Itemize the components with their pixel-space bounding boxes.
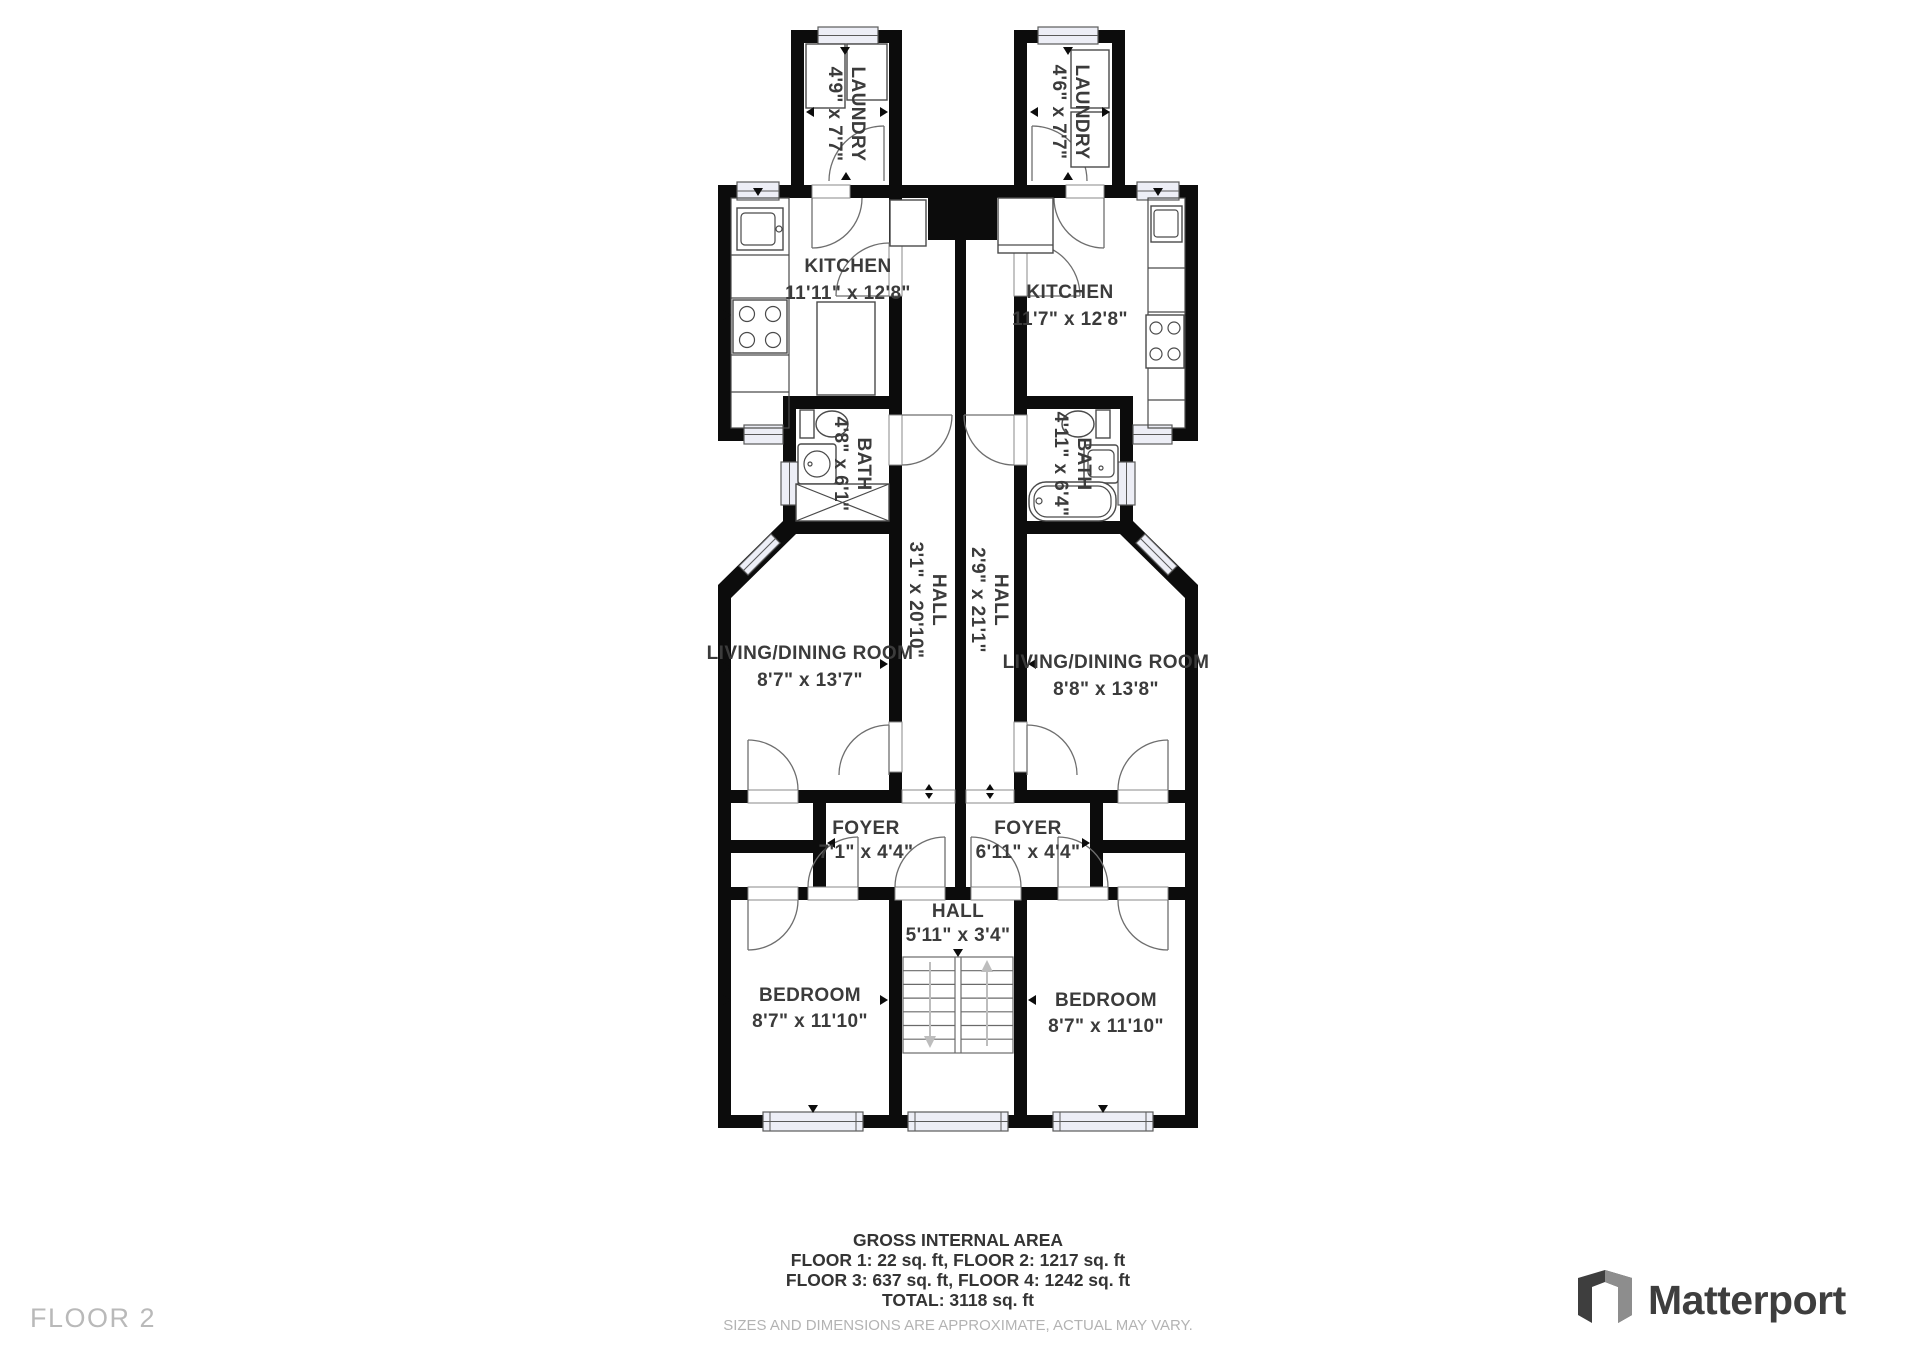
total-area: TOTAL: 3118 sq. ft [882,1290,1034,1310]
washer-dryer-left [806,44,887,108]
room-dims-living-left: 8'7" x 13'7" [757,670,863,691]
window-laundry-left [818,27,878,44]
room-name-bedroom-right: BEDROOM [1055,990,1157,1011]
room-dims-hall-left: 3'1" x 20'10" [905,542,926,659]
window-bedroom-left [763,1112,863,1131]
kitchen-left-cabinet [890,200,926,246]
floor-plan: LAUNDRY 4'9" x 7'7" LAUNDRY 4'6" x 7'7" … [0,0,1920,1357]
floor-label: FLOOR 2 [30,1303,156,1333]
floor-areas-line-1: FLOOR 1: 22 sq. ft, FLOOR 2: 1217 sq. ft [791,1250,1126,1270]
room-name-laundry-left: LAUNDRY [847,67,868,162]
dimensions-disclaimer: SIZES AND DIMENSIONS ARE APPROXIMATE, AC… [723,1317,1193,1334]
room-name-kitchen-right: KITCHEN [1026,282,1113,303]
room-name-bath-left: BATH [853,438,874,491]
brand-name: Matterport [1648,1277,1847,1323]
room-dims-hall-right: 2'9" x 21'1" [967,547,988,653]
room-name-kitchen-left: KITCHEN [804,256,891,277]
room-name-hall-center: HALL [932,901,984,922]
window-bedroom-right [1053,1112,1153,1131]
room-dims-kitchen-left: 11'11" x 12'8" [785,283,911,304]
window-bath-right-side [1118,462,1135,505]
room-dims-bedroom-left: 8'7" x 11'10" [752,1011,868,1032]
kitchen-right-cabinet [998,198,1053,253]
room-dims-foyer-right: 6'11" x 4'4" [976,842,1081,863]
room-name-foyer-right: FOYER [994,818,1061,839]
room-name-bedroom-left: BEDROOM [759,985,861,1006]
room-name-living-right: LIVING/DINING ROOM [1003,652,1210,673]
room-name-hall-right: HALL [990,574,1011,626]
kitchen-left-island [817,302,875,395]
bathtub-right [1029,482,1116,521]
room-dims-kitchen-right: 11'7" x 12'8" [1012,309,1128,330]
room-name-foyer-left: FOYER [832,818,899,839]
gross-internal-area-title: GROSS INTERNAL AREA [853,1230,1063,1250]
room-dims-laundry-right: 4'6" x 7'7" [1048,65,1069,160]
room-dims-hall-center: 5'11" x 3'4" [906,925,1011,946]
room-dims-bath-right: 4'11" x 6'4" [1050,412,1071,517]
window-hall-center [908,1112,1008,1131]
room-name-laundry-right: LAUNDRY [1071,65,1092,160]
window-laundry-right [1038,27,1098,44]
room-dims-foyer-left: 7'1" x 4'4" [819,842,914,863]
room-dims-living-right: 8'8" x 13'8" [1053,679,1159,700]
floor-areas-line-2: FLOOR 3: 637 sq. ft, FLOOR 4: 1242 sq. f… [786,1270,1130,1290]
room-name-living-left: LIVING/DINING ROOM [707,643,914,664]
brand-logo: Matterport [1578,1270,1847,1323]
room-dims-bath-left: 4'8" x 6'1" [830,417,851,512]
room-dims-laundry-left: 4'9" x 7'7" [824,67,845,162]
room-name-bath-right: BATH [1073,438,1094,491]
room-name-hall-left: HALL [928,574,949,626]
room-dims-bedroom-right: 8'7" x 11'10" [1048,1016,1164,1037]
